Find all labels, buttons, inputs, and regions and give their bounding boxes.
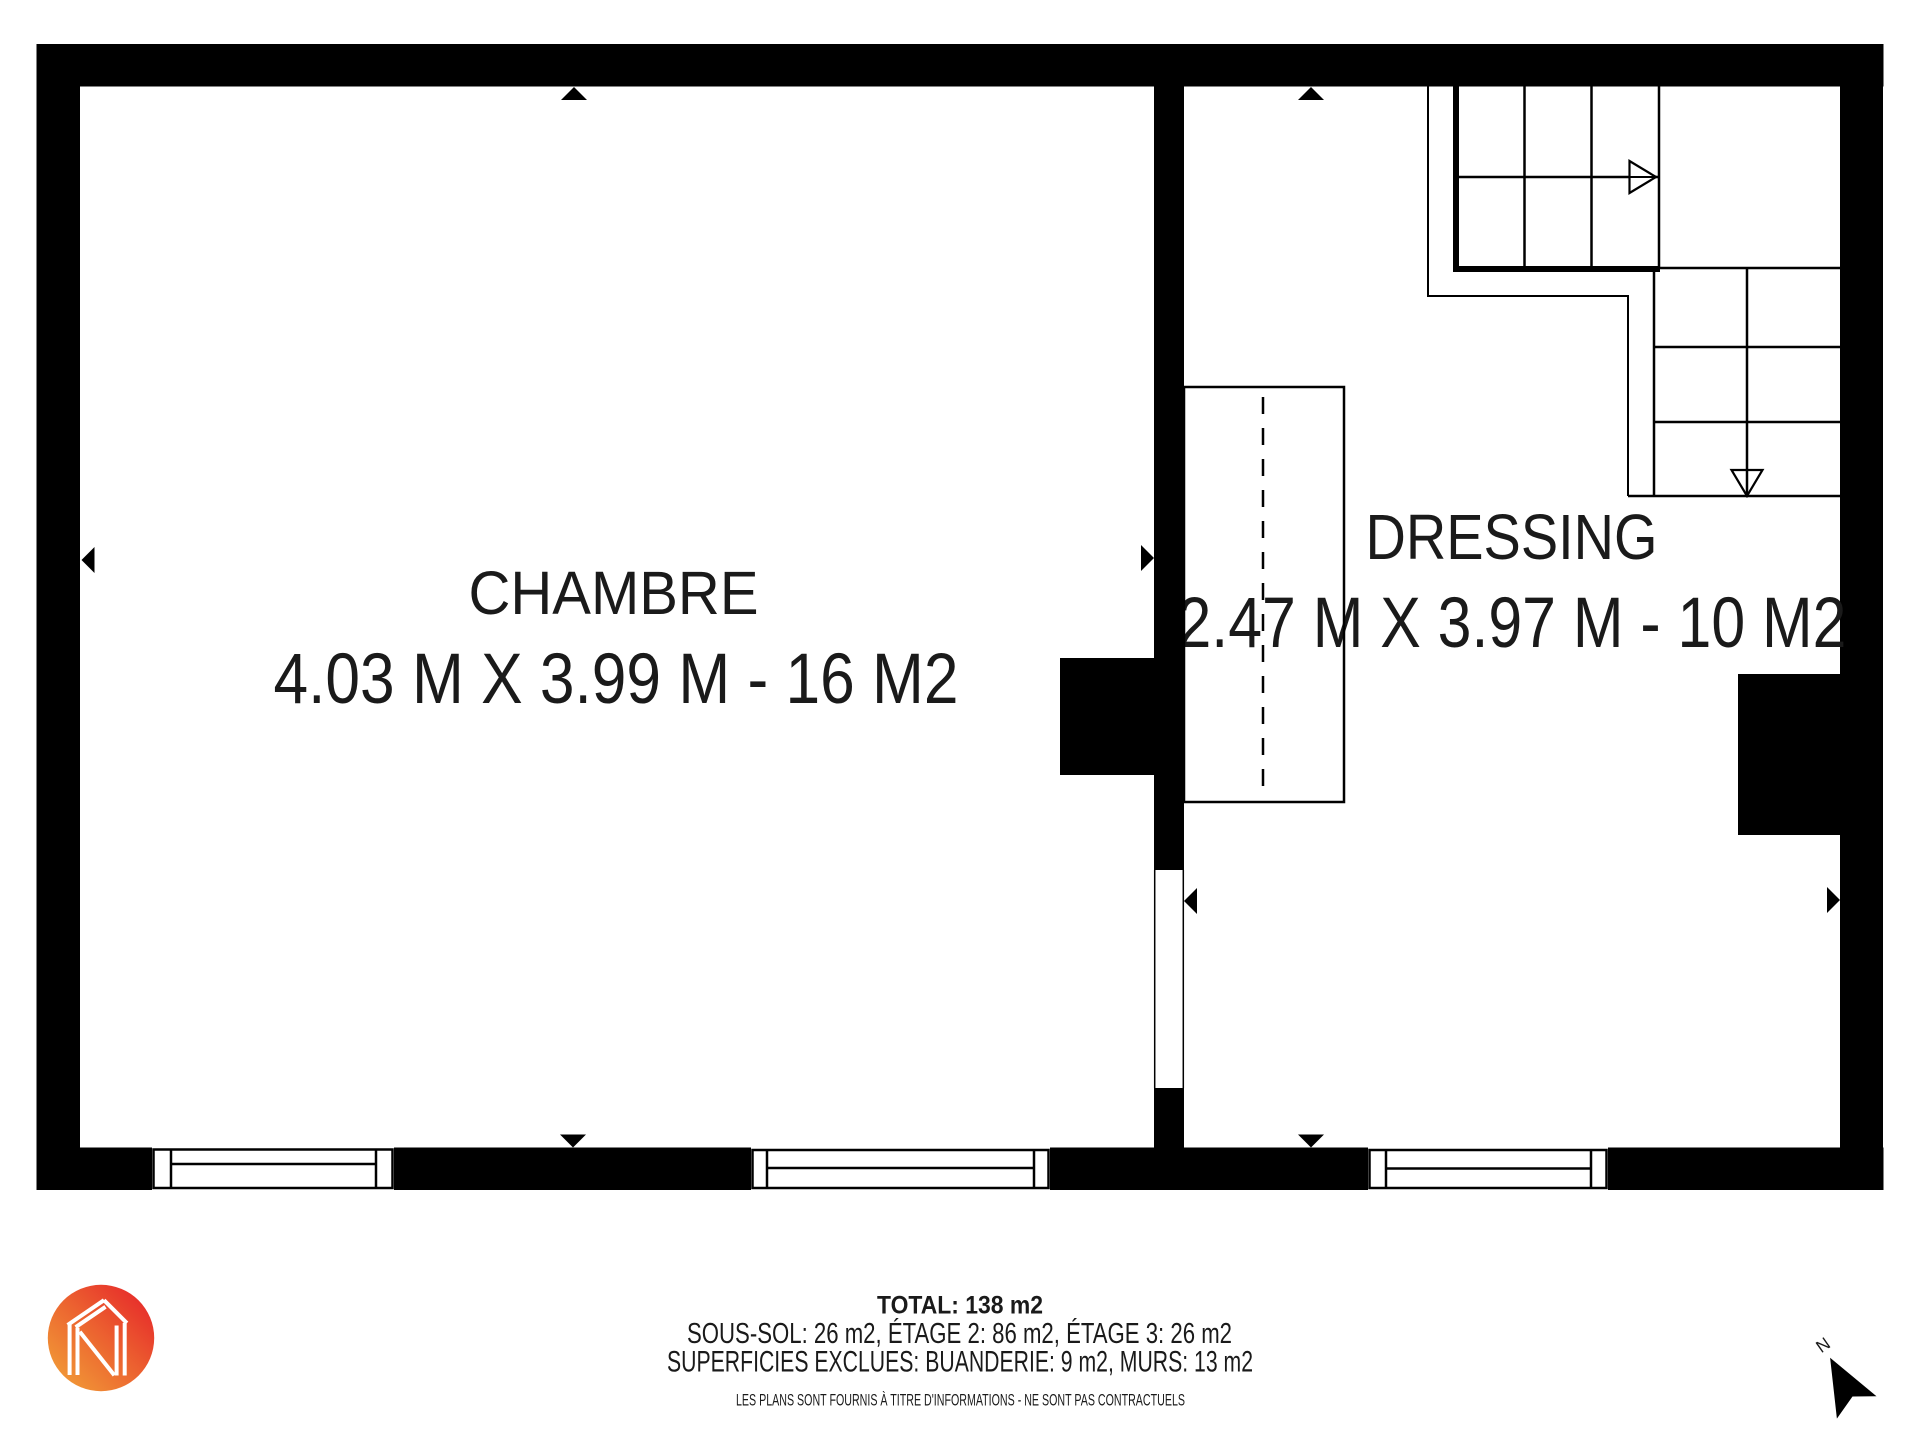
svg-text:SUPERFICIES EXCLUES: BUANDERIE: SUPERFICIES EXCLUES: BUANDERIE: 9 m2, MU… <box>667 1346 1253 1379</box>
svg-text:CHAMBRE: CHAMBRE <box>469 559 759 628</box>
svg-text:2.47 M X 3.97 M - 10 M2: 2.47 M X 3.97 M - 10 M2 <box>1178 584 1847 663</box>
svg-text:DRESSING: DRESSING <box>1366 501 1658 573</box>
svg-text:LES PLANS SONT FOURNIS À TITRE: LES PLANS SONT FOURNIS À TITRE D'INFORMA… <box>736 1390 1185 1409</box>
svg-text:4.03 M X 3.99 M - 16 M2: 4.03 M X 3.99 M - 16 M2 <box>274 640 959 719</box>
svg-text:TOTAL: 138 m2: TOTAL: 138 m2 <box>877 1292 1043 1320</box>
